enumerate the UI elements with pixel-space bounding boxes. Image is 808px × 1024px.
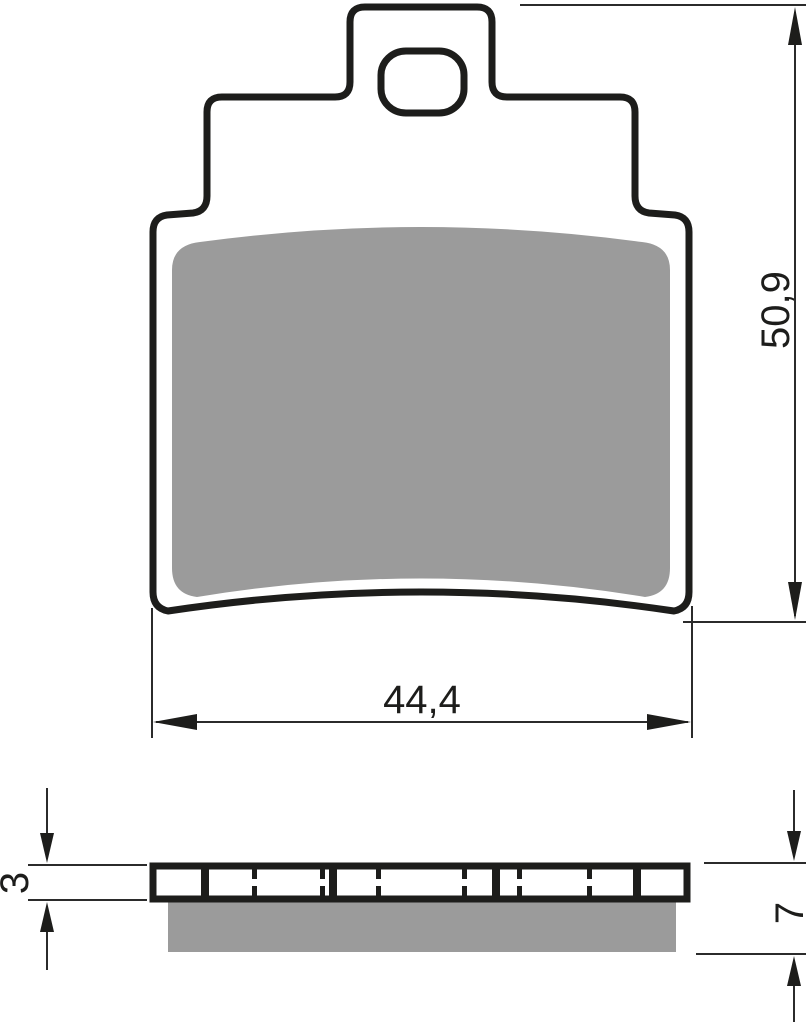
- arrow-right-icon: [647, 714, 691, 730]
- tick: [517, 886, 522, 899]
- tick: [376, 886, 381, 899]
- divider: [492, 864, 500, 901]
- tick: [252, 886, 257, 899]
- tick: [462, 866, 467, 879]
- tick: [252, 866, 257, 879]
- divider: [633, 864, 641, 901]
- side-view: [153, 864, 687, 952]
- tick: [587, 886, 592, 899]
- arrow-left-icon: [153, 714, 197, 730]
- brake-pad-technical-drawing: 50,9 44,4: [0, 0, 808, 1024]
- technical-drawing-page: 50,9 44,4: [0, 0, 808, 1024]
- dimension-label-pad-height: 50,9: [754, 271, 798, 349]
- mounting-hole: [381, 51, 464, 113]
- tick: [517, 866, 522, 879]
- tick: [320, 886, 325, 899]
- divider: [329, 864, 337, 901]
- arrow-down-icon: [788, 582, 802, 620]
- tick: [320, 866, 325, 879]
- dimension-label-pad-width: 44,4: [383, 678, 461, 722]
- friction-material-front: [172, 227, 670, 597]
- arrow-down-icon: [787, 831, 801, 861]
- dimension-label-backplate-thickness: 3: [0, 872, 37, 894]
- dimension-pad-width: 44,4: [152, 606, 692, 738]
- tick: [462, 886, 467, 899]
- tick: [587, 866, 592, 879]
- front-view: [153, 7, 689, 611]
- backplate-side: [153, 866, 687, 899]
- arrow-up-icon: [788, 7, 802, 45]
- tick: [376, 866, 381, 879]
- dimension-total-thickness: 7: [696, 790, 808, 1022]
- dimension-label-total-thickness: 7: [768, 902, 808, 924]
- friction-material-side: [168, 902, 676, 952]
- arrow-up-icon: [40, 902, 54, 932]
- divider: [201, 864, 209, 901]
- arrow-down-icon: [40, 833, 54, 863]
- dimension-backplate-thickness: 3: [0, 788, 147, 970]
- arrow-up-icon: [787, 956, 801, 986]
